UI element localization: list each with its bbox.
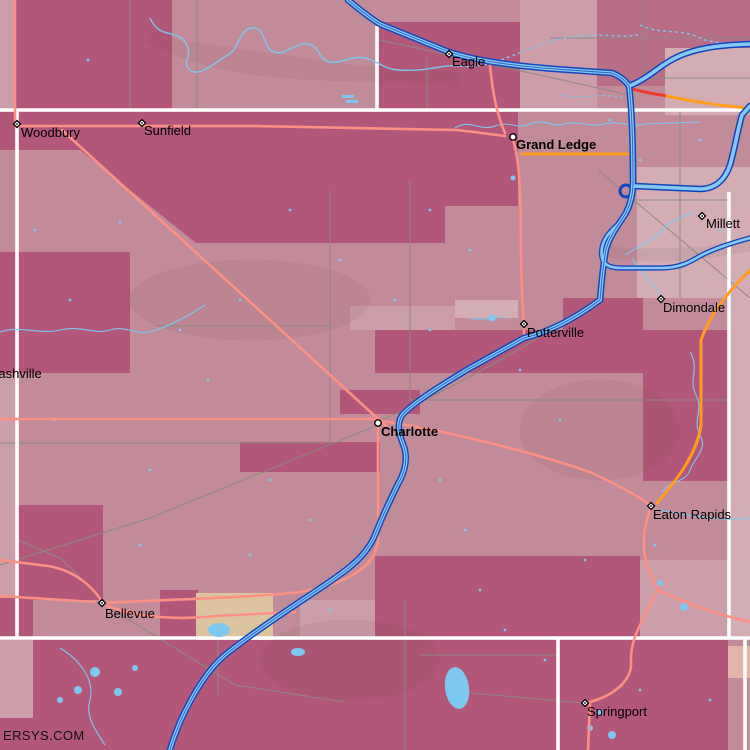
- town-marker-dot: [660, 298, 662, 300]
- town-marker-dot: [141, 122, 143, 124]
- town-marker-dot: [584, 702, 586, 704]
- town-marker-dot: [101, 602, 103, 604]
- place-label: Woodbury: [21, 125, 81, 140]
- place-grand-ledge: Grand Ledge: [510, 134, 596, 152]
- town-marker-dot: [16, 123, 18, 125]
- ersys-watermark: ERSYS.COM: [3, 728, 85, 743]
- place-label: Potterville: [527, 325, 584, 340]
- place-nashville: Nashville: [0, 366, 42, 381]
- map-canvas: EagleWoodburySunfieldGrand LedgeMillettD…: [0, 0, 750, 750]
- place-label: Charlotte: [381, 424, 438, 439]
- place-label: Bellevue: [105, 606, 155, 621]
- town-marker-dot: [523, 323, 525, 325]
- place-label: Grand Ledge: [516, 137, 596, 152]
- place-label: Dimondale: [663, 300, 725, 315]
- place-label: Sunfield: [144, 123, 191, 138]
- town-marker-dot: [448, 53, 450, 55]
- place-label: Eagle: [452, 54, 485, 69]
- place-label: Eaton Rapids: [653, 507, 732, 522]
- place-eagle: Eagle: [446, 51, 486, 70]
- town-marker-dot: [650, 505, 652, 507]
- place-label: Springport: [587, 704, 647, 719]
- place-label: Millett: [706, 216, 740, 231]
- place-label: Nashville: [0, 366, 42, 381]
- place-sunfield: Sunfield: [139, 120, 191, 139]
- ersys-county-map: EagleWoodburySunfieldGrand LedgeMillettD…: [0, 0, 750, 750]
- town-marker-dot: [701, 215, 703, 217]
